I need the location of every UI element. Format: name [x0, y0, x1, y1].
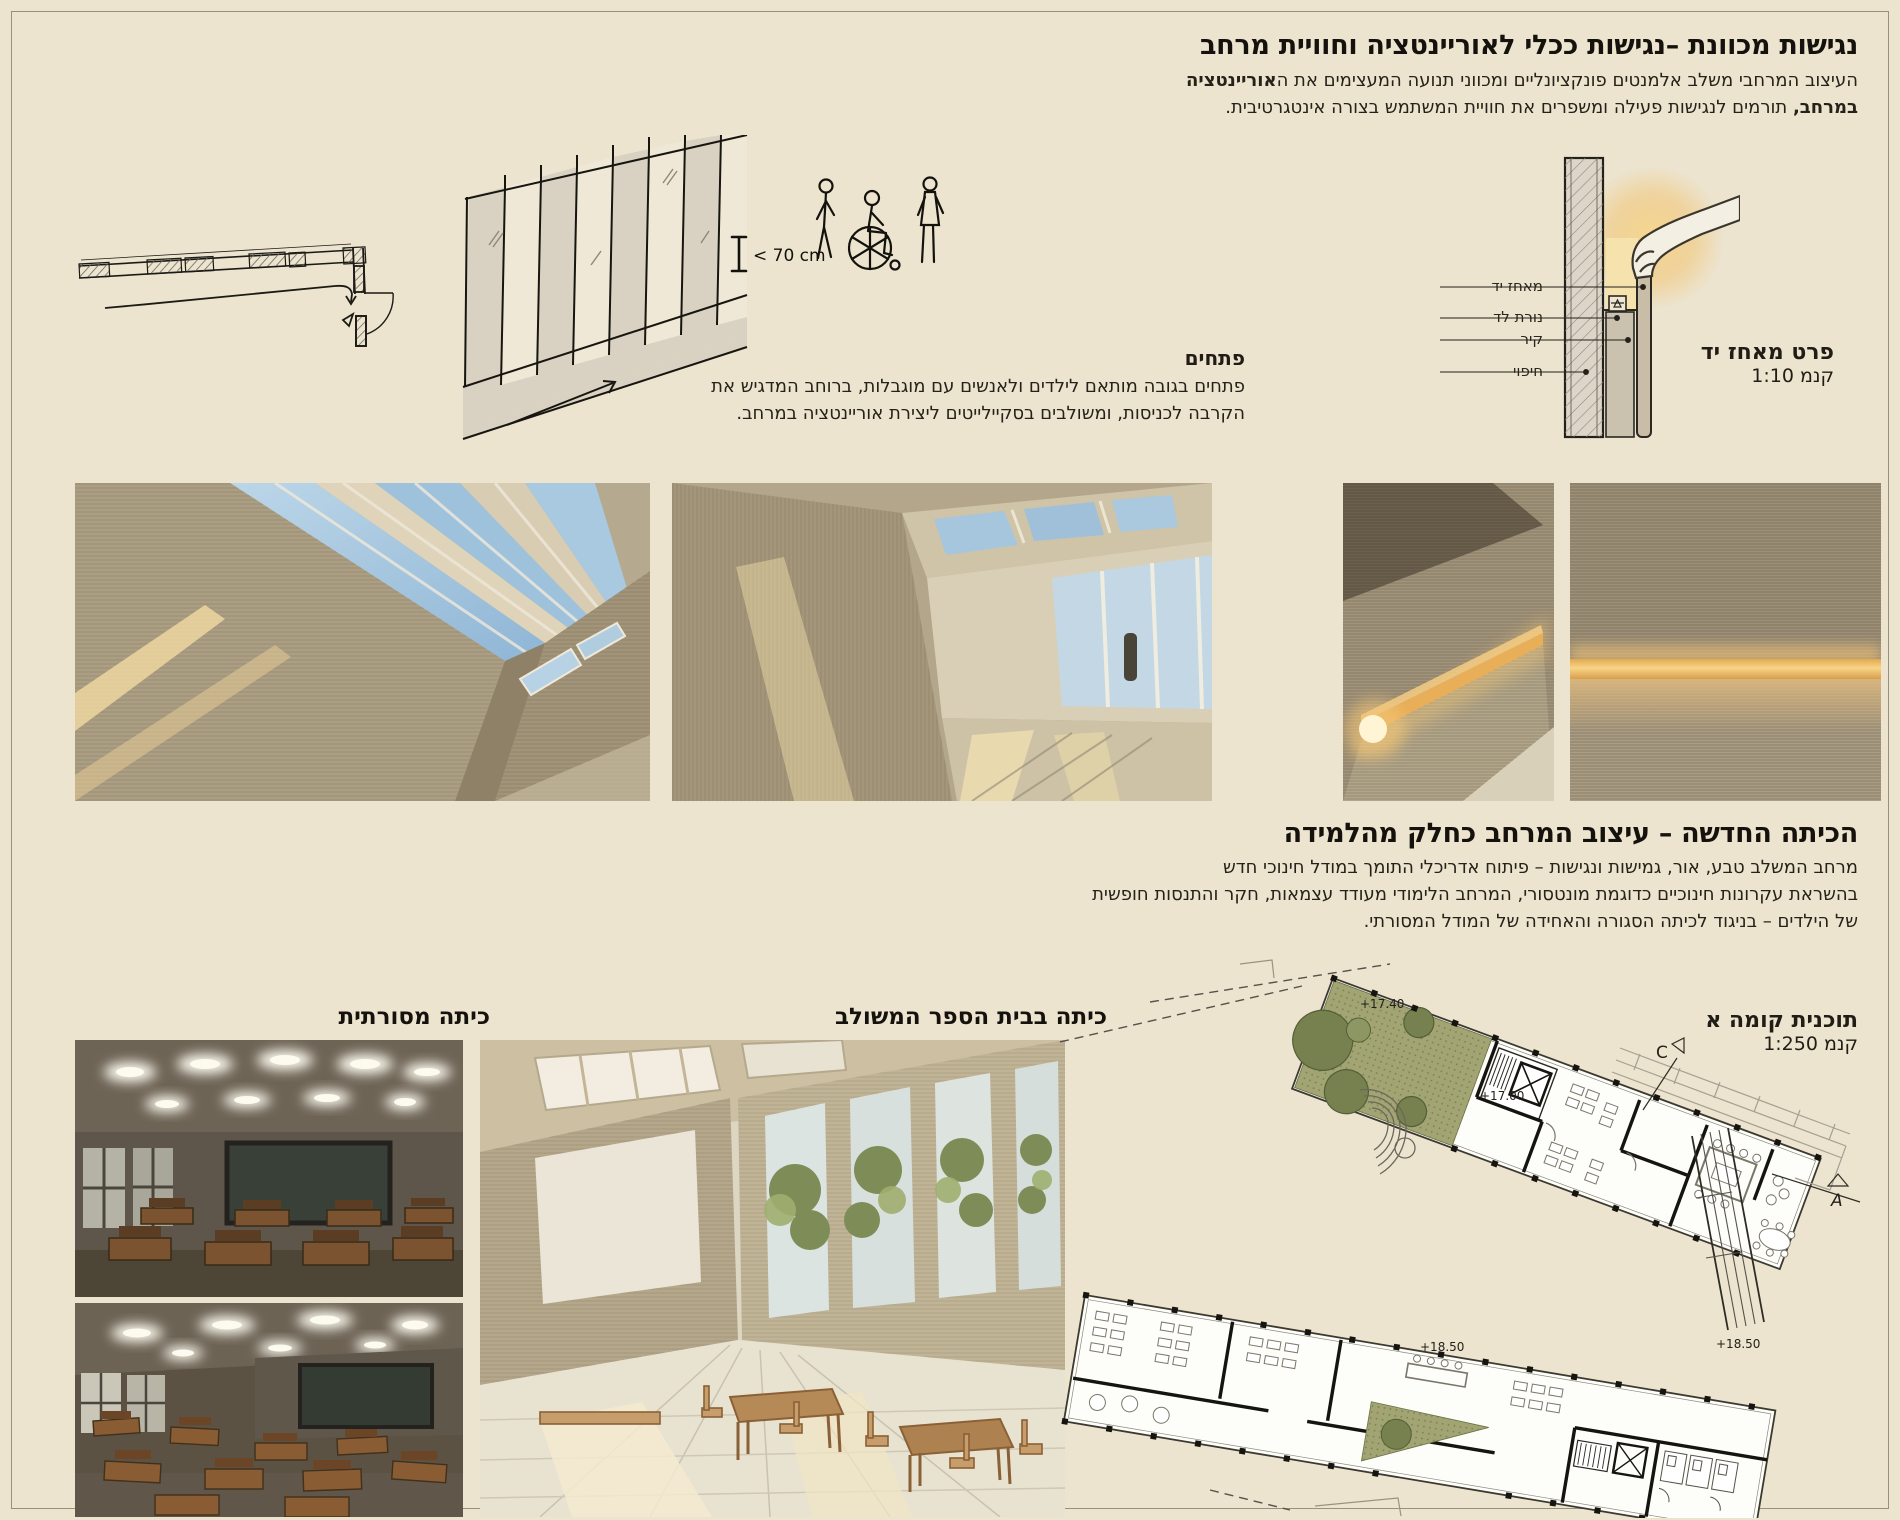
openings-heading: פתחים: [711, 346, 1245, 370]
intro-section: נגישות מכוונת –נגישות ככלי לאוריינטציה ו…: [1186, 30, 1858, 121]
floor-plan-figure: +17.40 +17.00 +18.50 +18.50 C A: [1060, 958, 1880, 1518]
window-wall-sketch-figure: [455, 135, 755, 445]
plan-level-17-40: +17.40: [1360, 997, 1404, 1011]
classroom-section: הכיתה החדשה – עיצוב המרחב כחלק מהלמידה מ…: [1092, 818, 1858, 935]
handrail-caption-scale: קנמ 1:10: [1701, 365, 1834, 387]
render-led-wall: [1570, 483, 1881, 801]
render-led-corner: [1343, 483, 1554, 801]
handrail-label-wall: קיר: [1521, 330, 1543, 348]
handrail-detail-figure: [1440, 150, 1740, 445]
classroom-line-1: מרחב המשלב טבע, אור, גמישות ונגישות – פי…: [1092, 854, 1858, 881]
render-skylight-2: [672, 483, 1212, 801]
handrail-label-led: נורת לד: [1493, 308, 1543, 326]
handrail-label-handle: מאחז יד: [1491, 277, 1543, 295]
intro-title: נגישות מכוונת –נגישות ככלי לאוריינטציה ו…: [1186, 30, 1858, 61]
measure-label: < 70 cm: [753, 246, 826, 266]
classroom-line-3: של הילדים – בניגוד לכיתה הסגורה והאחידה …: [1092, 908, 1858, 935]
handrail-label-cladding: חיפוי: [1513, 362, 1543, 380]
plan-level-18-50-b: +18.50: [1716, 1337, 1760, 1351]
intro-line-2: במרחב, תורמים לנגישות פעילה ומשפרים את ח…: [1186, 94, 1858, 121]
photo-traditional-1: [75, 1040, 463, 1297]
plan-marker-a: A: [1830, 1191, 1843, 1211]
handrail-caption: פרט מאחז יד קנמ 1:10: [1701, 340, 1834, 387]
plan-level-18-50-a: +18.50: [1420, 1340, 1464, 1354]
intro-line-1: העיצוב המרחבי משלב אלמנטים פונקציונליים …: [1186, 67, 1858, 94]
plan-level-17-00: +17.00: [1480, 1089, 1524, 1103]
photo-traditional-2: [75, 1303, 463, 1517]
caption-traditional: כיתה מסורתית: [338, 1004, 490, 1030]
classroom-title: הכיתה החדשה – עיצוב המרחב כחלק מהלמידה: [1092, 818, 1858, 849]
classroom-line-2: בהשראת עקרונות חינוכיים כדוגמת מונטסורי,…: [1092, 881, 1858, 908]
handrail-caption-title: פרט מאחז יד: [1701, 340, 1834, 365]
plan-marker-c: C: [1656, 1043, 1668, 1063]
people-sketch: [817, 178, 943, 270]
render-skylight-1: [75, 483, 650, 801]
openings-line-1: פתחים בגובה מותאם לילדים ולאנשים עם מוגב…: [711, 373, 1245, 400]
accessibility-figures-sketch: < 70 cm: [725, 165, 960, 300]
render-integrated-classroom: [480, 1040, 1065, 1517]
presentation-board: נגישות מכוונת –נגישות ככלי לאוריינטציה ו…: [0, 0, 1900, 1520]
openings-line-2: הקרבה לכניסות, ומשולבים בסקיילייטים ליצי…: [711, 400, 1245, 427]
openings-section: פתחים פתחים בגובה מותאם לילדים ולאנשים ע…: [711, 346, 1245, 427]
plan-sketch-figure: [75, 238, 395, 353]
